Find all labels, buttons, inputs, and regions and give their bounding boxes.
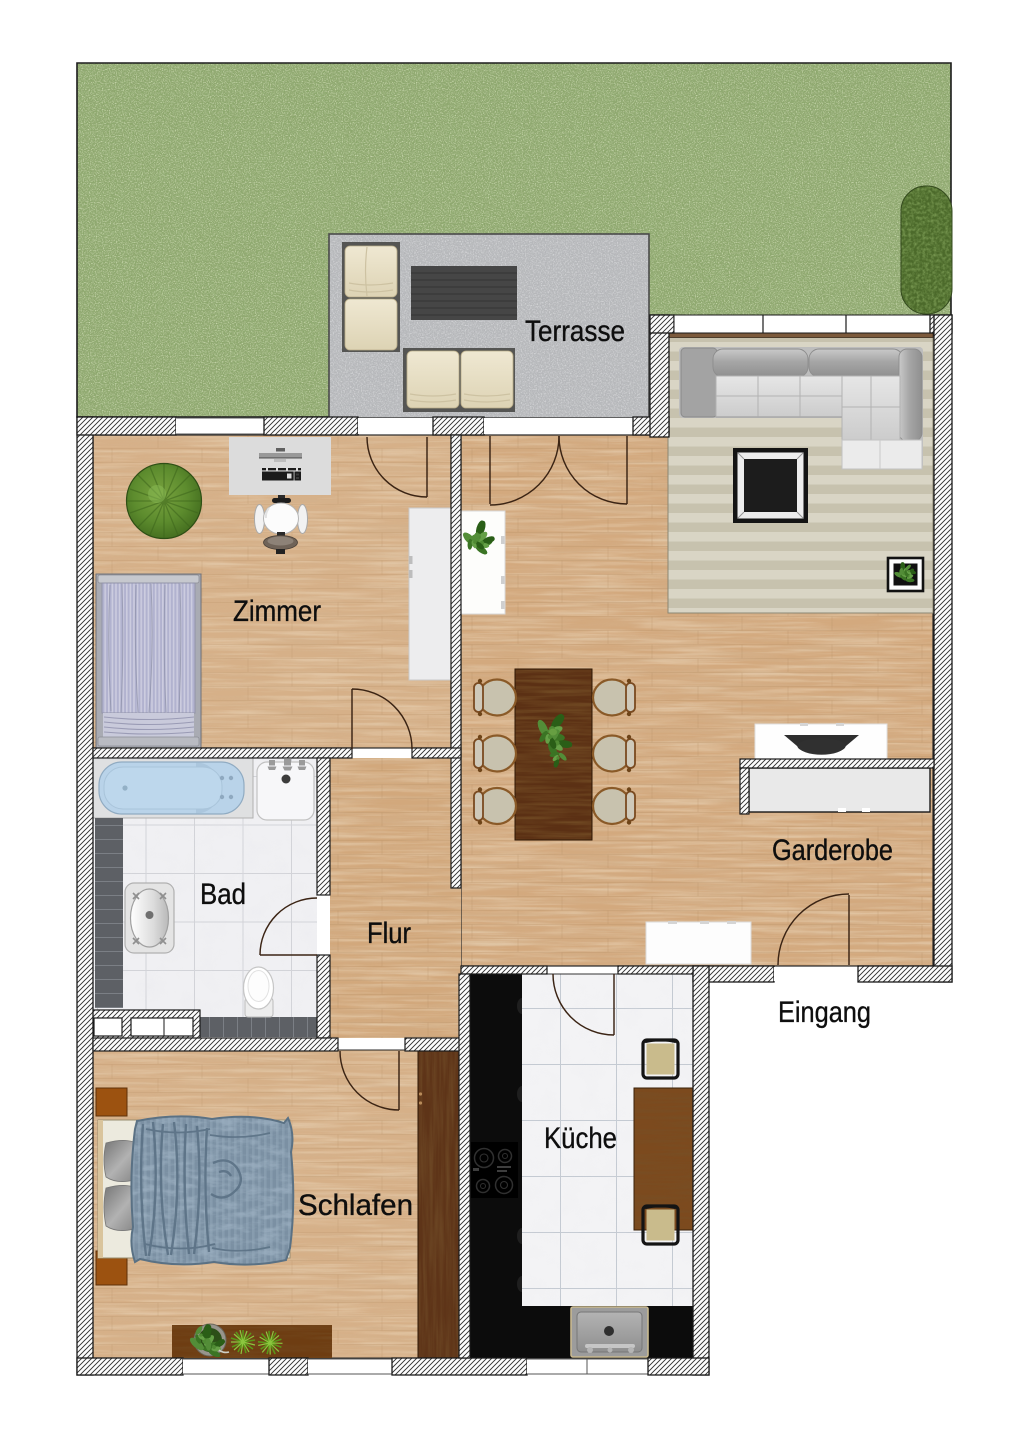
svg-text:Schlafen: Schlafen bbox=[298, 1189, 413, 1222]
svg-text:Küche: Küche bbox=[544, 1122, 617, 1155]
svg-text:Terrasse: Terrasse bbox=[525, 315, 625, 348]
svg-text:Zimmer: Zimmer bbox=[233, 595, 321, 628]
svg-text:Eingang: Eingang bbox=[778, 996, 871, 1029]
svg-text:Bad: Bad bbox=[200, 878, 246, 911]
svg-text:Flur: Flur bbox=[367, 917, 411, 950]
svg-text:Garderobe: Garderobe bbox=[772, 834, 893, 867]
